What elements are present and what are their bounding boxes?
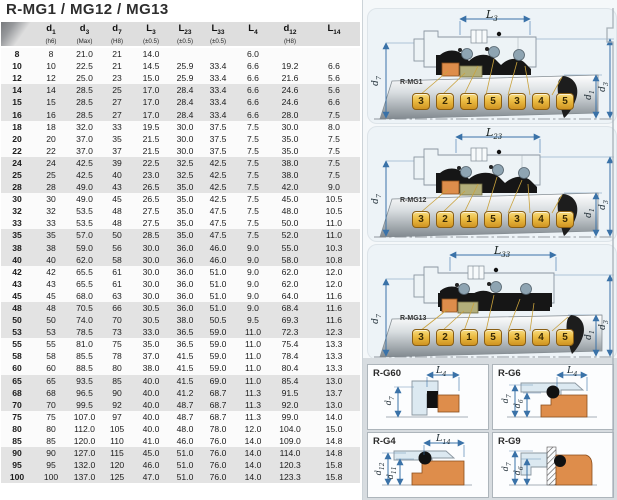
cell-d7: 56 — [100, 242, 134, 254]
cell-L33: 42.5 — [202, 157, 234, 169]
cell-size: 22 — [1, 145, 33, 157]
cell-size: 15 — [1, 96, 33, 108]
cell-L33: 51.0 — [202, 290, 234, 302]
cell-d12: 58.0 — [272, 254, 308, 266]
cell-d12: 69.3 — [272, 314, 308, 326]
cell-d7: 110 — [100, 435, 134, 447]
cell-d3: 37.0 — [69, 145, 100, 157]
cell-size: 10 — [1, 60, 33, 72]
cell-L3: 33.0 — [134, 326, 168, 338]
cell-L33: 51.0 — [202, 266, 234, 278]
cell-L23: 36.0 — [168, 302, 202, 314]
cell-L23: 38.0 — [168, 314, 202, 326]
cell-size: 85 — [1, 435, 33, 447]
cell-L3: 47.0 — [134, 471, 168, 483]
part-badge: 1 — [460, 211, 478, 228]
cell-d3: 93.5 — [69, 375, 100, 387]
cell-L33: 68.7 — [202, 387, 234, 399]
cell-d1: 42 — [33, 266, 69, 278]
cell-L3: 40.0 — [134, 375, 168, 387]
cell-L23: 36.0 — [168, 254, 202, 266]
diagram-r-mg13: L33 d7 d1 d3 R-MG13 3215345 — [367, 244, 617, 360]
cell-d7: 45 — [100, 193, 134, 205]
cell-d12: 52.0 — [272, 229, 308, 241]
part-badge: 1 — [460, 329, 478, 346]
cell-d12: 35.0 — [272, 145, 308, 157]
cell-L23: 41.5 — [168, 362, 202, 374]
cell-L14: 11.6 — [308, 302, 360, 314]
cell-L3: 27.5 — [134, 205, 168, 217]
cell-L14: 13.0 — [308, 375, 360, 387]
cell-d12: 99.0 — [272, 411, 308, 423]
cell-L33: 47.5 — [202, 229, 234, 241]
cell-d12: 48.0 — [272, 205, 308, 217]
cell-L23: 28.4 — [168, 84, 202, 96]
cell-L3: 28.5 — [134, 229, 168, 241]
table-row: 68 68 96.5 90 40.0 41.2 68.7 11.3 91.5 1… — [1, 387, 360, 399]
cell-L3: 21.5 — [134, 145, 168, 157]
cell-L4: 9.0 — [234, 266, 272, 278]
cell-d7: 70 — [100, 314, 134, 326]
cell-L33: 42.5 — [202, 169, 234, 181]
table-row: 38 38 59.0 56 30.0 36.0 46.0 9.0 55.0 10… — [1, 242, 360, 254]
cell-d3: 62.0 — [69, 254, 100, 266]
cell-d7: 97 — [100, 411, 134, 423]
cell-L33: 42.5 — [202, 181, 234, 193]
cell-d7: 105 — [100, 423, 134, 435]
cell-d1: 100 — [33, 471, 69, 483]
table-row: 16 16 28.5 27 17.0 28.4 33.4 6.6 28.0 7.… — [1, 108, 360, 120]
cell-L3: 30.0 — [134, 242, 168, 254]
cell-L33: 59.0 — [202, 350, 234, 362]
cell-d7: 85 — [100, 375, 134, 387]
cell-L14: 12.0 — [308, 278, 360, 290]
cell-size: 53 — [1, 326, 33, 338]
cell-L14: 6.6 — [308, 60, 360, 72]
cell-L4: 11.3 — [234, 399, 272, 411]
cell-d1: 8 — [33, 47, 69, 60]
table-row: 32 32 53.5 48 27.5 35.0 47.5 7.5 48.0 10… — [1, 205, 360, 217]
cell-size: 45 — [1, 290, 33, 302]
dim-label-d6: d6 — [513, 394, 525, 414]
cell-L23: 41.5 — [168, 350, 202, 362]
cell-d1: 55 — [33, 338, 69, 350]
cell-d12: 28.0 — [272, 108, 308, 120]
dim-label-d3: d3 — [598, 315, 610, 335]
model-label: R-MG13 — [400, 315, 426, 322]
panel-label: R-G60 — [373, 368, 401, 379]
cell-d12: 30.0 — [272, 121, 308, 133]
cell-L4: 7.5 — [234, 121, 272, 133]
cell-L23: 51.0 — [168, 459, 202, 471]
cell-L14: 15.8 — [308, 459, 360, 471]
cell-L33: 33.4 — [202, 96, 234, 108]
cell-d1: 35 — [33, 229, 69, 241]
part-badge: 5 — [484, 211, 502, 228]
cell-L23: 41.5 — [168, 375, 202, 387]
dim-label-d6: d6 — [513, 461, 525, 481]
cell-L14: 14.8 — [308, 447, 360, 459]
cell-L14: 13.7 — [308, 387, 360, 399]
dim-label-d3: d3 — [598, 77, 610, 97]
part-badge: 4 — [532, 93, 550, 110]
cell-d3: 65.5 — [69, 266, 100, 278]
cell-L33: 51.0 — [202, 278, 234, 290]
panel-r-g9: R-G9 d7 d6 — [492, 432, 614, 498]
cell-L14: 12.0 — [308, 266, 360, 278]
table-row: 43 43 65.5 61 30.0 36.0 51.0 9.0 62.0 12… — [1, 278, 360, 290]
cell-L3: 35.0 — [134, 338, 168, 350]
cell-d3: 65.5 — [69, 278, 100, 290]
cell-d3: 28.5 — [69, 96, 100, 108]
cell-size: 33 — [1, 217, 33, 229]
cell-L4: 9.0 — [234, 290, 272, 302]
cell-L14: 11.0 — [308, 217, 360, 229]
part-badge: 1 — [460, 93, 478, 110]
cell-L14: 15.8 — [308, 471, 360, 483]
cell-d12: 45.0 — [272, 193, 308, 205]
cell-L3: 22.5 — [134, 157, 168, 169]
cell-d3: 22.5 — [69, 60, 100, 72]
cell-d7: 40 — [100, 169, 134, 181]
cell-d7: 50 — [100, 229, 134, 241]
cell-d3: 88.5 — [69, 362, 100, 374]
cell-d7: 61 — [100, 278, 134, 290]
cell-L33 — [202, 47, 234, 60]
cell-L14: 10.3 — [308, 242, 360, 254]
cell-d7: 27 — [100, 108, 134, 120]
table-row: 18 18 32.0 33 19.5 30.0 37.5 7.5 30.0 8.… — [1, 121, 360, 133]
cell-size: 28 — [1, 181, 33, 193]
cell-size: 60 — [1, 362, 33, 374]
cell-L4: 11.3 — [234, 411, 272, 423]
cell-L4: 6.6 — [234, 84, 272, 96]
column-header: d7 (H8) — [100, 22, 134, 47]
cell-L14: 5.6 — [308, 72, 360, 84]
part-badge: 3 — [508, 93, 526, 110]
dim-label-d3: d3 — [598, 195, 610, 215]
cell-L23: 51.0 — [168, 471, 202, 483]
cell-L33: 76.0 — [202, 471, 234, 483]
cell-L14 — [308, 47, 360, 60]
cell-d3: 28.5 — [69, 84, 100, 96]
column-header: L23 (±0.5) — [168, 22, 202, 47]
cell-d7: 78 — [100, 350, 134, 362]
cell-L3: 40.0 — [134, 411, 168, 423]
cell-d1: 32 — [33, 205, 69, 217]
cell-L3: 27.5 — [134, 217, 168, 229]
cell-L23: 48.7 — [168, 411, 202, 423]
cell-size: 90 — [1, 447, 33, 459]
cell-d7: 39 — [100, 157, 134, 169]
cell-d7: 120 — [100, 459, 134, 471]
cell-d12: 72.3 — [272, 326, 308, 338]
table-row: 30 30 49.0 45 26.5 35.0 42.5 7.5 45.0 10… — [1, 193, 360, 205]
cell-L3: 30.0 — [134, 290, 168, 302]
dim-label-d12: d12 — [374, 459, 386, 479]
cell-d7: 73 — [100, 326, 134, 338]
cell-d12: 50.0 — [272, 217, 308, 229]
cell-size: 68 — [1, 387, 33, 399]
cell-size: 24 — [1, 157, 33, 169]
cell-d12: 55.0 — [272, 242, 308, 254]
cell-d1: 58 — [33, 350, 69, 362]
cell-d3: 107.0 — [69, 411, 100, 423]
table-row: 100 100 137.0 125 47.0 51.0 76.0 14.0 12… — [1, 471, 360, 483]
cell-L14: 6.6 — [308, 96, 360, 108]
cell-size: 35 — [1, 229, 33, 241]
cell-L4: 12.0 — [234, 423, 272, 435]
cell-size: 58 — [1, 350, 33, 362]
cell-L4: 7.5 — [234, 193, 272, 205]
cell-L23: 30.0 — [168, 133, 202, 145]
cell-L4: 6.6 — [234, 60, 272, 72]
cell-d12: 120.3 — [272, 459, 308, 471]
cell-L3: 17.0 — [134, 108, 168, 120]
cell-L4: 11.0 — [234, 338, 272, 350]
cell-d1: 22 — [33, 145, 69, 157]
cell-d1: 15 — [33, 96, 69, 108]
table-row: 58 58 85.5 78 37.0 41.5 59.0 11.0 78.4 1… — [1, 350, 360, 362]
dim-label-L4: L4 — [567, 365, 577, 378]
cell-d1: 95 — [33, 459, 69, 471]
cell-L4: 11.0 — [234, 326, 272, 338]
cell-L4: 7.5 — [234, 145, 272, 157]
table-row: 85 85 120.0 110 41.0 46.0 76.0 14.0 109.… — [1, 435, 360, 447]
cell-L23: 36.0 — [168, 278, 202, 290]
cell-L3: 40.0 — [134, 387, 168, 399]
table-row: 70 70 99.5 92 40.0 48.7 68.7 11.3 92.0 1… — [1, 399, 360, 411]
cell-d7: 48 — [100, 205, 134, 217]
cell-L3: 30.0 — [134, 278, 168, 290]
cell-d7: 92 — [100, 399, 134, 411]
cell-L23: 51.0 — [168, 447, 202, 459]
panel-label: R-G9 — [498, 436, 521, 447]
cell-size: 100 — [1, 471, 33, 483]
cell-d12: 78.4 — [272, 350, 308, 362]
cell-d12: 38.0 — [272, 157, 308, 169]
cell-L14: 8.0 — [308, 121, 360, 133]
diagram-column: L3 d7 d1 d3 R-MG1 3215345 — [362, 0, 617, 500]
cell-d12: 91.5 — [272, 387, 308, 399]
cell-d1: 24 — [33, 157, 69, 169]
table-row: 90 90 127.0 115 45.0 51.0 76.0 14.0 114.… — [1, 447, 360, 459]
cell-L3: 46.0 — [134, 459, 168, 471]
column-header: L3 (±0.5) — [134, 22, 168, 47]
column-header: L33 (±0.5) — [202, 22, 234, 47]
cell-size: 43 — [1, 278, 33, 290]
cell-L33: 37.5 — [202, 121, 234, 133]
cell-L3: 26.5 — [134, 181, 168, 193]
table-row: 20 20 37.0 35 21.5 30.0 37.5 7.5 35.0 7.… — [1, 133, 360, 145]
cell-L4: 11.0 — [234, 375, 272, 387]
panel-label: R-G6 — [498, 368, 521, 379]
part-number-badges: 3215345 — [412, 329, 574, 346]
cell-d1: 45 — [33, 290, 69, 302]
cell-L3: 30.5 — [134, 314, 168, 326]
cell-d7: 48 — [100, 217, 134, 229]
part-badge: 3 — [508, 211, 526, 228]
cell-L23: 36.0 — [168, 290, 202, 302]
cell-L23: 35.0 — [168, 181, 202, 193]
cell-L14: 10.8 — [308, 254, 360, 266]
cell-d3: 81.0 — [69, 338, 100, 350]
cell-L33: 68.7 — [202, 411, 234, 423]
table-row: 15 15 28.5 27 17.0 28.4 33.4 6.6 24.6 6.… — [1, 96, 360, 108]
cell-L23: 32.5 — [168, 157, 202, 169]
cell-L4: 11.0 — [234, 350, 272, 362]
table-row: 35 35 57.0 50 28.5 35.0 47.5 7.5 52.0 11… — [1, 229, 360, 241]
dim-label-d1: d1 — [584, 85, 596, 105]
column-header — [1, 22, 33, 47]
cell-size: 20 — [1, 133, 33, 145]
cell-L14: 11.0 — [308, 229, 360, 241]
column-header: d3 (Max) — [69, 22, 100, 47]
cell-d7: 63 — [100, 290, 134, 302]
cell-L3: 21.5 — [134, 133, 168, 145]
cell-d3: 68.0 — [69, 290, 100, 302]
cell-d1: 38 — [33, 242, 69, 254]
dim-label-d7: d7 — [384, 391, 396, 411]
cell-L23: 28.4 — [168, 108, 202, 120]
cell-d3: 21.0 — [69, 47, 100, 60]
cell-L4: 7.5 — [234, 169, 272, 181]
cell-d1: 28 — [33, 181, 69, 193]
cell-d12: 24.6 — [272, 84, 308, 96]
table-row: 65 65 93.5 85 40.0 41.5 69.0 11.0 85.4 1… — [1, 375, 360, 387]
cell-L3: 45.0 — [134, 447, 168, 459]
cell-d1: 12 — [33, 72, 69, 84]
cell-L4: 7.5 — [234, 181, 272, 193]
cell-L4: 6.0 — [234, 47, 272, 60]
cell-d3: 137.0 — [69, 471, 100, 483]
cell-d3: 57.0 — [69, 229, 100, 241]
cell-L3: 26.5 — [134, 193, 168, 205]
cell-d12: 64.0 — [272, 290, 308, 302]
cell-d12: 123.3 — [272, 471, 308, 483]
cell-L3: 40.0 — [134, 399, 168, 411]
table-row: 75 75 107.0 97 40.0 48.7 68.7 11.3 99.0 … — [1, 411, 360, 423]
column-header: L4 — [234, 22, 272, 47]
cell-L23: 35.0 — [168, 229, 202, 241]
table-header-row: d1 (h6) d3 (Max) d7 (H8) L3 — [1, 22, 360, 47]
cell-L4: 9.0 — [234, 254, 272, 266]
cell-L23 — [168, 47, 202, 60]
cell-L4: 14.0 — [234, 447, 272, 459]
cell-d1: 85 — [33, 435, 69, 447]
cell-d12: 109.0 — [272, 435, 308, 447]
column-header: d1 (h6) — [33, 22, 69, 47]
cell-d7: 115 — [100, 447, 134, 459]
panel-r-g4: R-G4 L14 d12 d11 — [367, 432, 489, 498]
cell-size: 42 — [1, 266, 33, 278]
cell-L23: 35.0 — [168, 193, 202, 205]
table-row: 60 60 88.5 80 38.0 41.5 59.0 11.0 80.4 1… — [1, 362, 360, 374]
cell-size: 8 — [1, 47, 33, 60]
cell-size: 25 — [1, 169, 33, 181]
cell-d7: 66 — [100, 302, 134, 314]
cell-L33: 37.5 — [202, 133, 234, 145]
cell-L23: 32.5 — [168, 169, 202, 181]
part-badge: 5 — [556, 329, 574, 346]
table-row: 53 53 78.5 73 33.0 36.5 59.0 11.0 72.3 1… — [1, 326, 360, 338]
cell-d1: 43 — [33, 278, 69, 290]
panel-r-g60: R-G60 L4 d7 — [367, 364, 489, 430]
cell-d3: 42.5 — [69, 169, 100, 181]
cell-L14: 10.5 — [308, 205, 360, 217]
cell-L33: 33.4 — [202, 84, 234, 96]
cell-L23: 25.9 — [168, 72, 202, 84]
cell-d12: 35.0 — [272, 133, 308, 145]
cell-L23: 28.4 — [168, 96, 202, 108]
cell-size: 32 — [1, 205, 33, 217]
cell-L33: 59.0 — [202, 338, 234, 350]
cell-d3: 49.0 — [69, 181, 100, 193]
cell-d1: 18 — [33, 121, 69, 133]
cell-L14: 9.0 — [308, 181, 360, 193]
cell-L3: 19.5 — [134, 121, 168, 133]
dim-label-L4: L4 — [436, 365, 446, 378]
cell-d1: 90 — [33, 447, 69, 459]
cell-size: 80 — [1, 423, 33, 435]
table-row: 42 42 65.5 61 30.0 36.0 51.0 9.0 62.0 12… — [1, 266, 360, 278]
model-label: R-MG1 — [400, 79, 423, 86]
diagram-r-mg12: L23 d7 d1 d3 R-MG12 3215345 — [367, 126, 617, 242]
part-number-badges: 3215345 — [412, 211, 574, 228]
cell-L4: 7.5 — [234, 157, 272, 169]
cell-L14: 13.3 — [308, 362, 360, 374]
cell-size: 12 — [1, 72, 33, 84]
cell-L23: 48.7 — [168, 399, 202, 411]
cell-d1: 30 — [33, 193, 69, 205]
cell-size: 70 — [1, 399, 33, 411]
table-row: 8 8 21.0 21 14.0 6.0 — [1, 47, 360, 60]
cell-L33: 33.4 — [202, 72, 234, 84]
cell-L4: 6.6 — [234, 108, 272, 120]
dim-label-d7: d7 — [501, 389, 513, 409]
cell-L4: 9.0 — [234, 242, 272, 254]
cell-size: 16 — [1, 108, 33, 120]
cell-L23: 30.0 — [168, 121, 202, 133]
cell-d3: 49.0 — [69, 193, 100, 205]
part-badge: 2 — [436, 329, 454, 346]
cell-d1: 33 — [33, 217, 69, 229]
part-badge: 4 — [532, 329, 550, 346]
cell-d7: 80 — [100, 362, 134, 374]
cell-L23: 35.0 — [168, 205, 202, 217]
seat-detail-grid: R-G60 L4 d7 R-G6 — [363, 358, 617, 500]
cell-L14: 15.0 — [308, 423, 360, 435]
cell-L3: 41.0 — [134, 435, 168, 447]
part-badge: 5 — [556, 93, 574, 110]
cell-L14: 7.5 — [308, 145, 360, 157]
cell-L3: 30.5 — [134, 302, 168, 314]
cell-d3: 78.5 — [69, 326, 100, 338]
cell-size: 55 — [1, 338, 33, 350]
cell-d3: 53.5 — [69, 205, 100, 217]
table-row: 95 95 132.0 120 46.0 51.0 76.0 14.0 120.… — [1, 459, 360, 471]
cell-d7: 27 — [100, 96, 134, 108]
part-badge: 5 — [484, 93, 502, 110]
cell-L3: 15.0 — [134, 72, 168, 84]
cell-L3: 38.0 — [134, 362, 168, 374]
dim-label-d1: d1 — [584, 325, 596, 345]
cell-L14: 14.0 — [308, 411, 360, 423]
cell-d12: 85.4 — [272, 375, 308, 387]
cell-L33: 51.0 — [202, 302, 234, 314]
catalog-page: R-MG1 / MG12 / MG13 d1 (h6) d3 — [0, 0, 617, 500]
part-badge: 3 — [508, 329, 526, 346]
